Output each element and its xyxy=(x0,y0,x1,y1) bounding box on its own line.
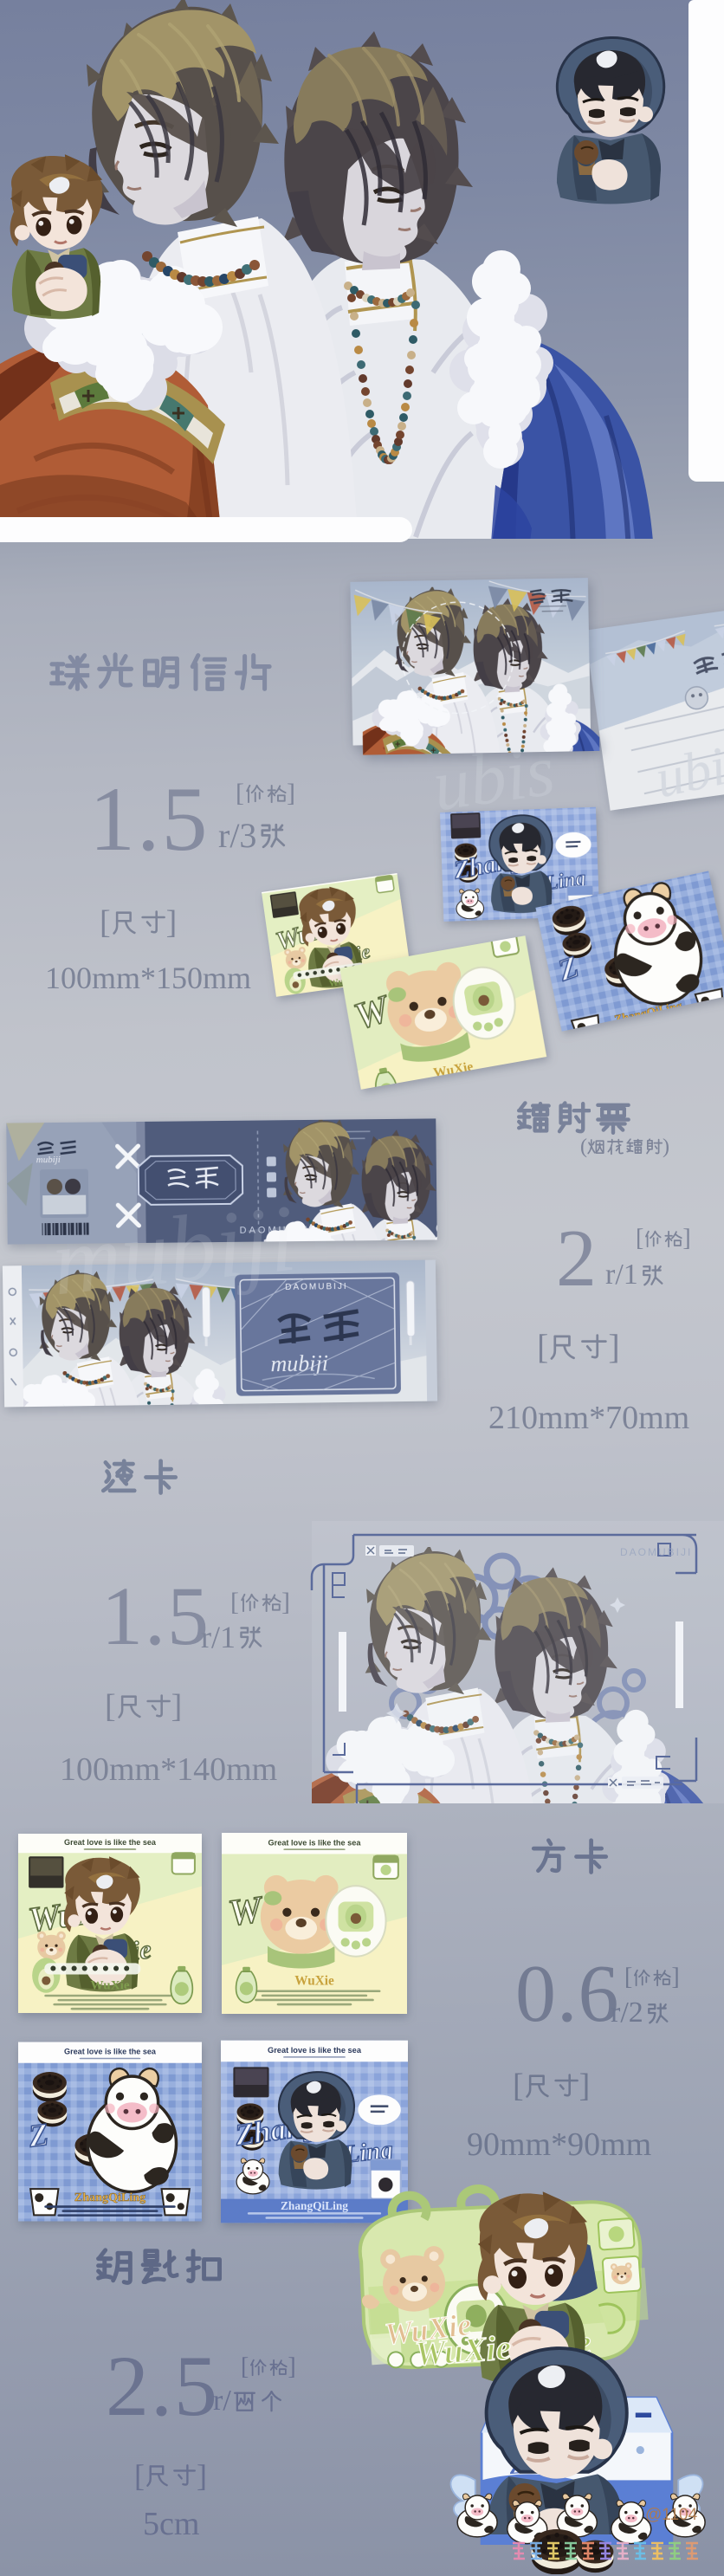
svg-text:mubiji: mubiji xyxy=(36,1155,61,1165)
svg-text:DAOMUBIJI: DAOMUBIJI xyxy=(620,1546,692,1558)
svg-text:mubiji: mubiji xyxy=(270,1350,328,1376)
